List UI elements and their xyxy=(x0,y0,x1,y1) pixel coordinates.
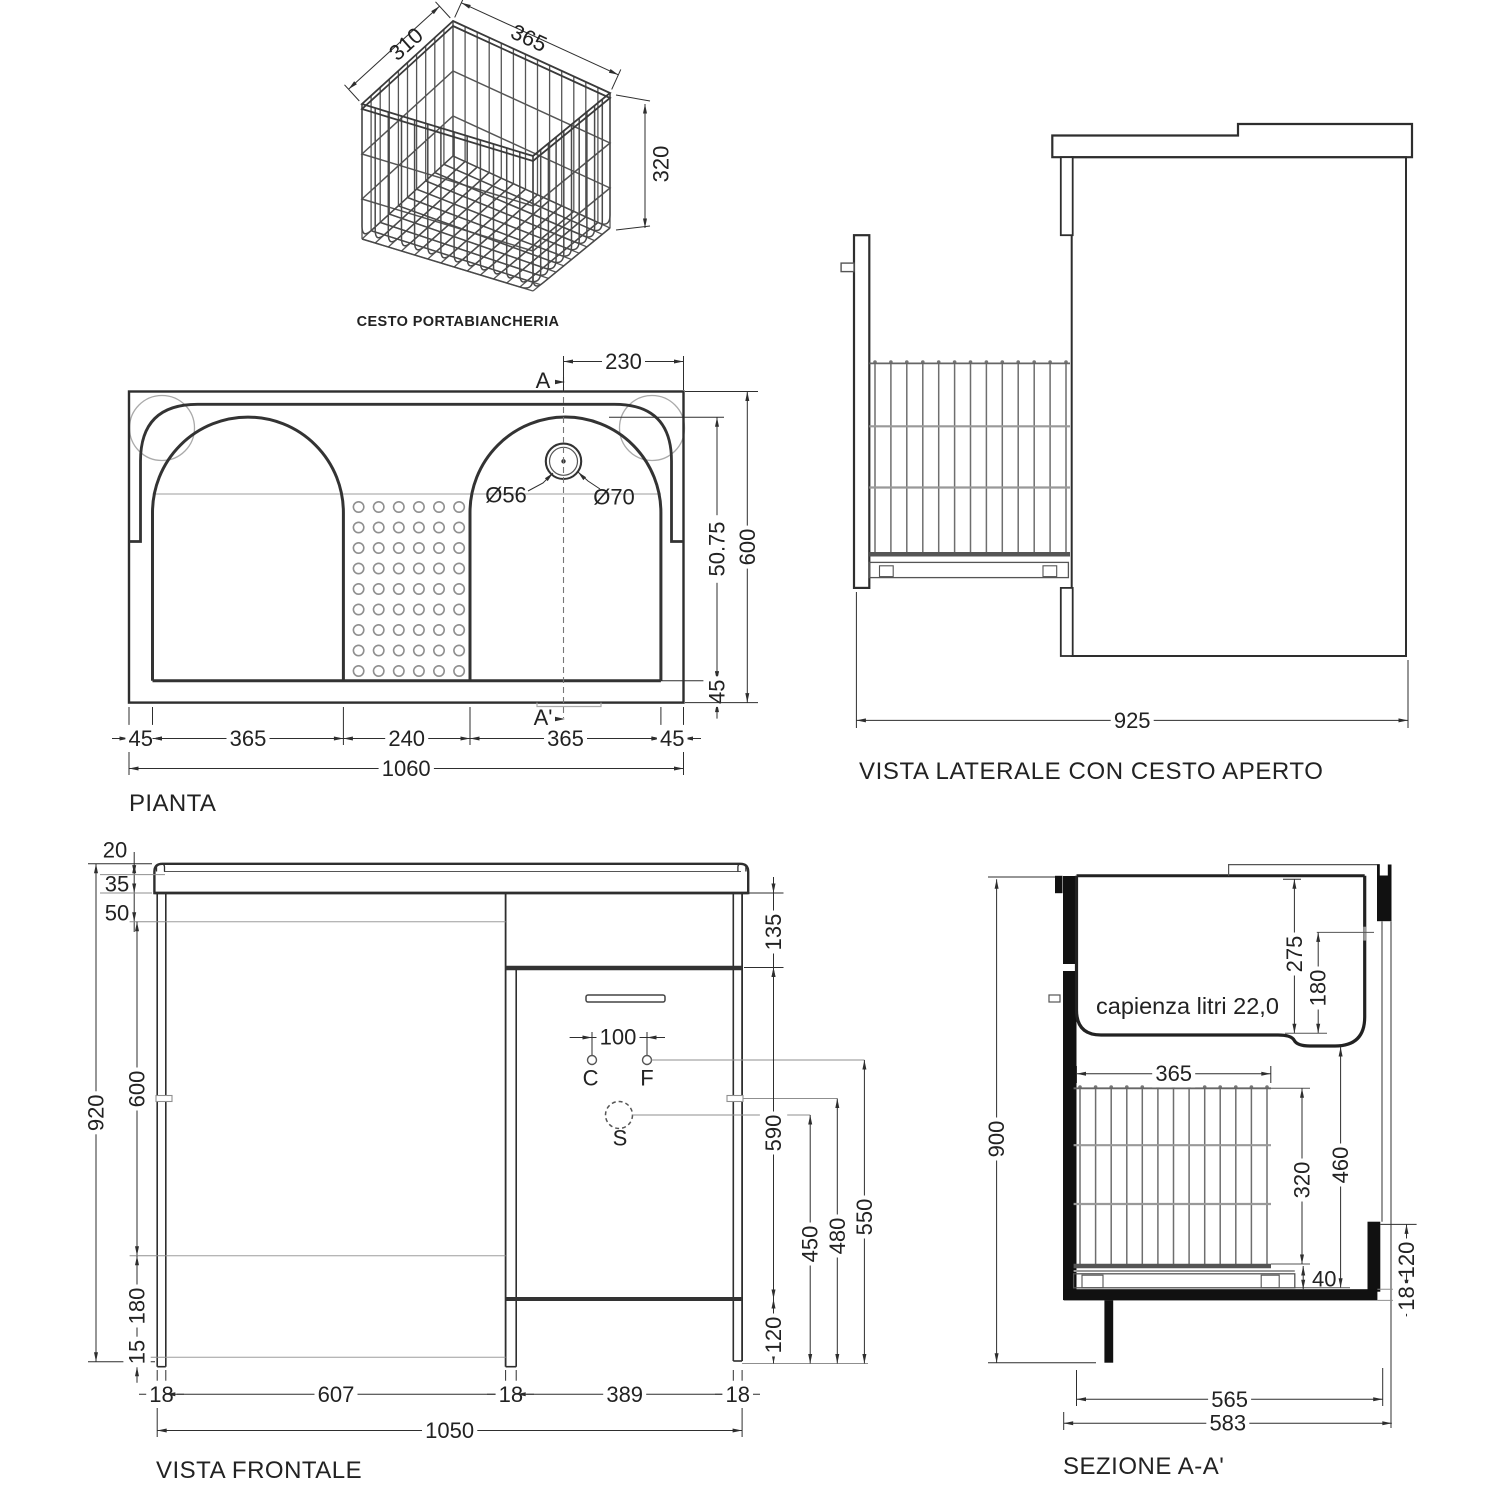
svg-text:230: 230 xyxy=(605,349,642,374)
svg-text:550: 550 xyxy=(852,1199,877,1236)
svg-text:389: 389 xyxy=(606,1382,643,1407)
svg-text:Ø56: Ø56 xyxy=(485,483,527,508)
svg-text:45: 45 xyxy=(660,726,684,751)
svg-text:135: 135 xyxy=(761,914,786,951)
svg-text:365: 365 xyxy=(1155,1061,1192,1086)
svg-text:365: 365 xyxy=(547,726,584,751)
svg-text:45: 45 xyxy=(705,679,730,703)
svg-text:460: 460 xyxy=(1328,1147,1353,1184)
svg-text:PIANTA: PIANTA xyxy=(129,790,216,817)
svg-text:VISTA LATERALE CON CESTO APERT: VISTA LATERALE CON CESTO APERTO xyxy=(859,758,1324,785)
svg-text:480: 480 xyxy=(825,1218,850,1255)
svg-text:18: 18 xyxy=(1394,1286,1419,1310)
svg-text:50.75: 50.75 xyxy=(705,521,730,576)
svg-text:275: 275 xyxy=(1282,936,1307,973)
svg-text:925: 925 xyxy=(1114,708,1151,733)
svg-text:120: 120 xyxy=(761,1317,786,1354)
svg-text:1050: 1050 xyxy=(425,1418,474,1443)
svg-text:CESTO PORTABIANCHERIA: CESTO PORTABIANCHERIA xyxy=(357,314,560,330)
svg-text:SEZIONE A-A': SEZIONE A-A' xyxy=(1063,1453,1224,1480)
svg-text:capienza litri 22,0: capienza litri 22,0 xyxy=(1096,993,1279,1019)
svg-text:180: 180 xyxy=(1306,970,1331,1007)
svg-text:450: 450 xyxy=(798,1226,823,1263)
svg-text:240: 240 xyxy=(388,726,425,751)
svg-text:120: 120 xyxy=(1394,1242,1419,1279)
svg-text:C: C xyxy=(583,1066,599,1091)
svg-text:18: 18 xyxy=(725,1382,749,1407)
svg-text:40: 40 xyxy=(1312,1267,1336,1292)
svg-text:1060: 1060 xyxy=(382,756,431,781)
svg-text:320: 320 xyxy=(649,146,674,183)
svg-text:45: 45 xyxy=(128,726,152,751)
svg-text:S: S xyxy=(613,1126,628,1151)
svg-text:100: 100 xyxy=(600,1025,637,1050)
svg-text:565: 565 xyxy=(1211,1387,1248,1412)
svg-text:600: 600 xyxy=(735,529,760,566)
svg-text:180: 180 xyxy=(125,1288,150,1325)
svg-text:583: 583 xyxy=(1209,1411,1246,1436)
svg-text:365: 365 xyxy=(230,726,267,751)
svg-text:VISTA FRONTALE: VISTA FRONTALE xyxy=(156,1457,362,1484)
svg-text:20: 20 xyxy=(103,838,127,863)
svg-text:15: 15 xyxy=(125,1340,150,1364)
svg-text:600: 600 xyxy=(125,1071,150,1108)
svg-text:900: 900 xyxy=(984,1121,1009,1158)
svg-text:920: 920 xyxy=(84,1094,109,1131)
svg-text:50: 50 xyxy=(105,901,129,926)
svg-text:590: 590 xyxy=(761,1115,786,1152)
svg-text:35: 35 xyxy=(105,872,129,897)
svg-text:320: 320 xyxy=(1290,1162,1315,1199)
svg-text:A: A xyxy=(536,368,551,393)
svg-text:607: 607 xyxy=(318,1382,355,1407)
svg-text:F: F xyxy=(640,1066,653,1091)
